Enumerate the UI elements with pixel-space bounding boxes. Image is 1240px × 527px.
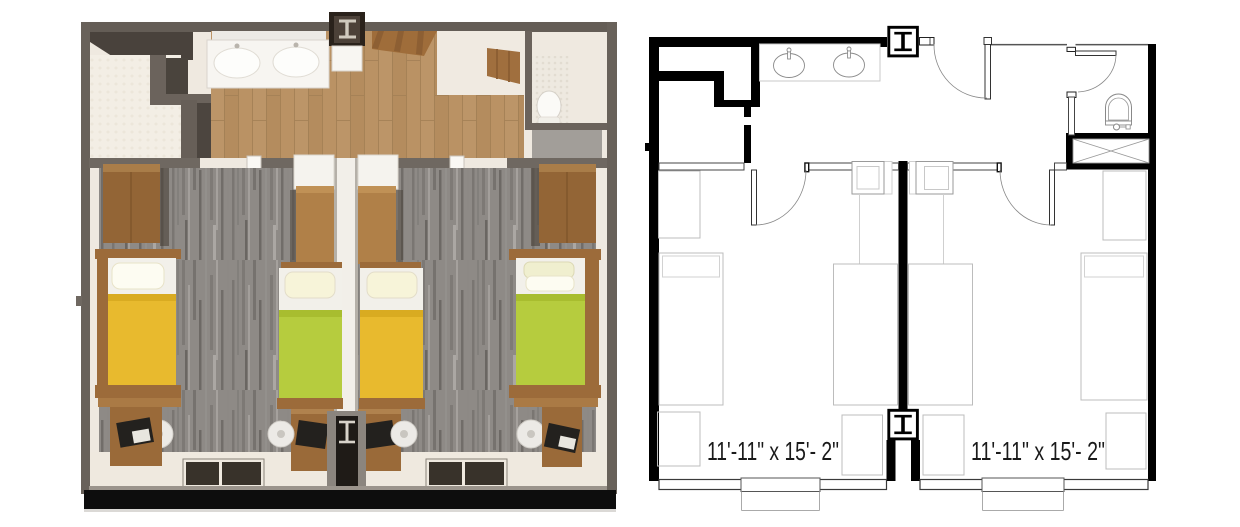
svg-text:11'-11" x 15'- 2": 11'-11" x 15'- 2" — [707, 436, 839, 466]
svg-text:11'-11" x 15'- 2": 11'-11" x 15'- 2" — [971, 436, 1105, 466]
